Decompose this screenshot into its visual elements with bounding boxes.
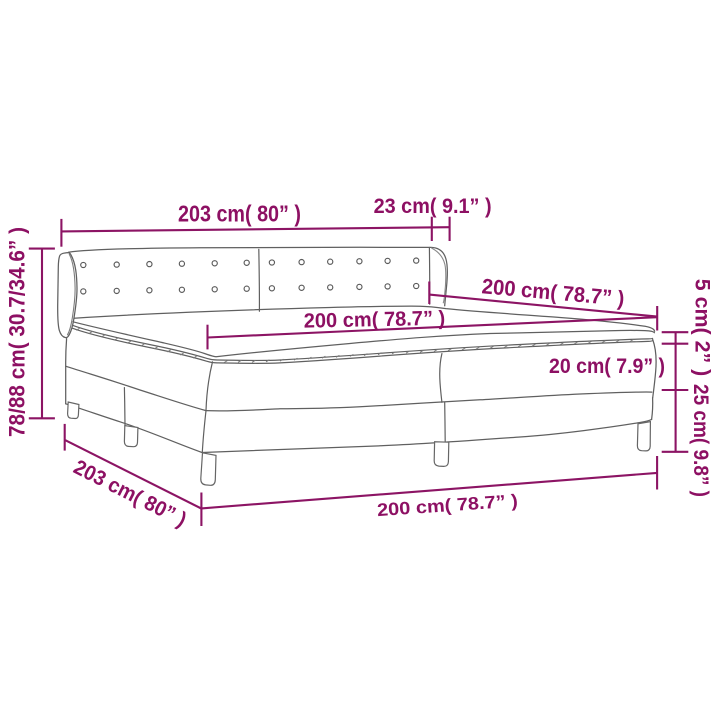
svg-text:25 cm( 9.8” ): 25 cm( 9.8” )	[689, 384, 713, 497]
svg-text:20 cm( 7.9” ): 20 cm( 7.9” )	[549, 355, 665, 378]
svg-text:5 cm( 2” ): 5 cm( 2” )	[691, 279, 715, 377]
svg-text:78/88 cm( 30.7/34.6” ): 78/88 cm( 30.7/34.6” )	[5, 227, 30, 437]
svg-text:200 cm( 78.7” ): 200 cm( 78.7” )	[303, 307, 445, 333]
svg-text:23 cm( 9.1” ): 23 cm( 9.1” )	[374, 195, 492, 218]
svg-text:203 cm( 80” ): 203 cm( 80” )	[178, 201, 301, 227]
